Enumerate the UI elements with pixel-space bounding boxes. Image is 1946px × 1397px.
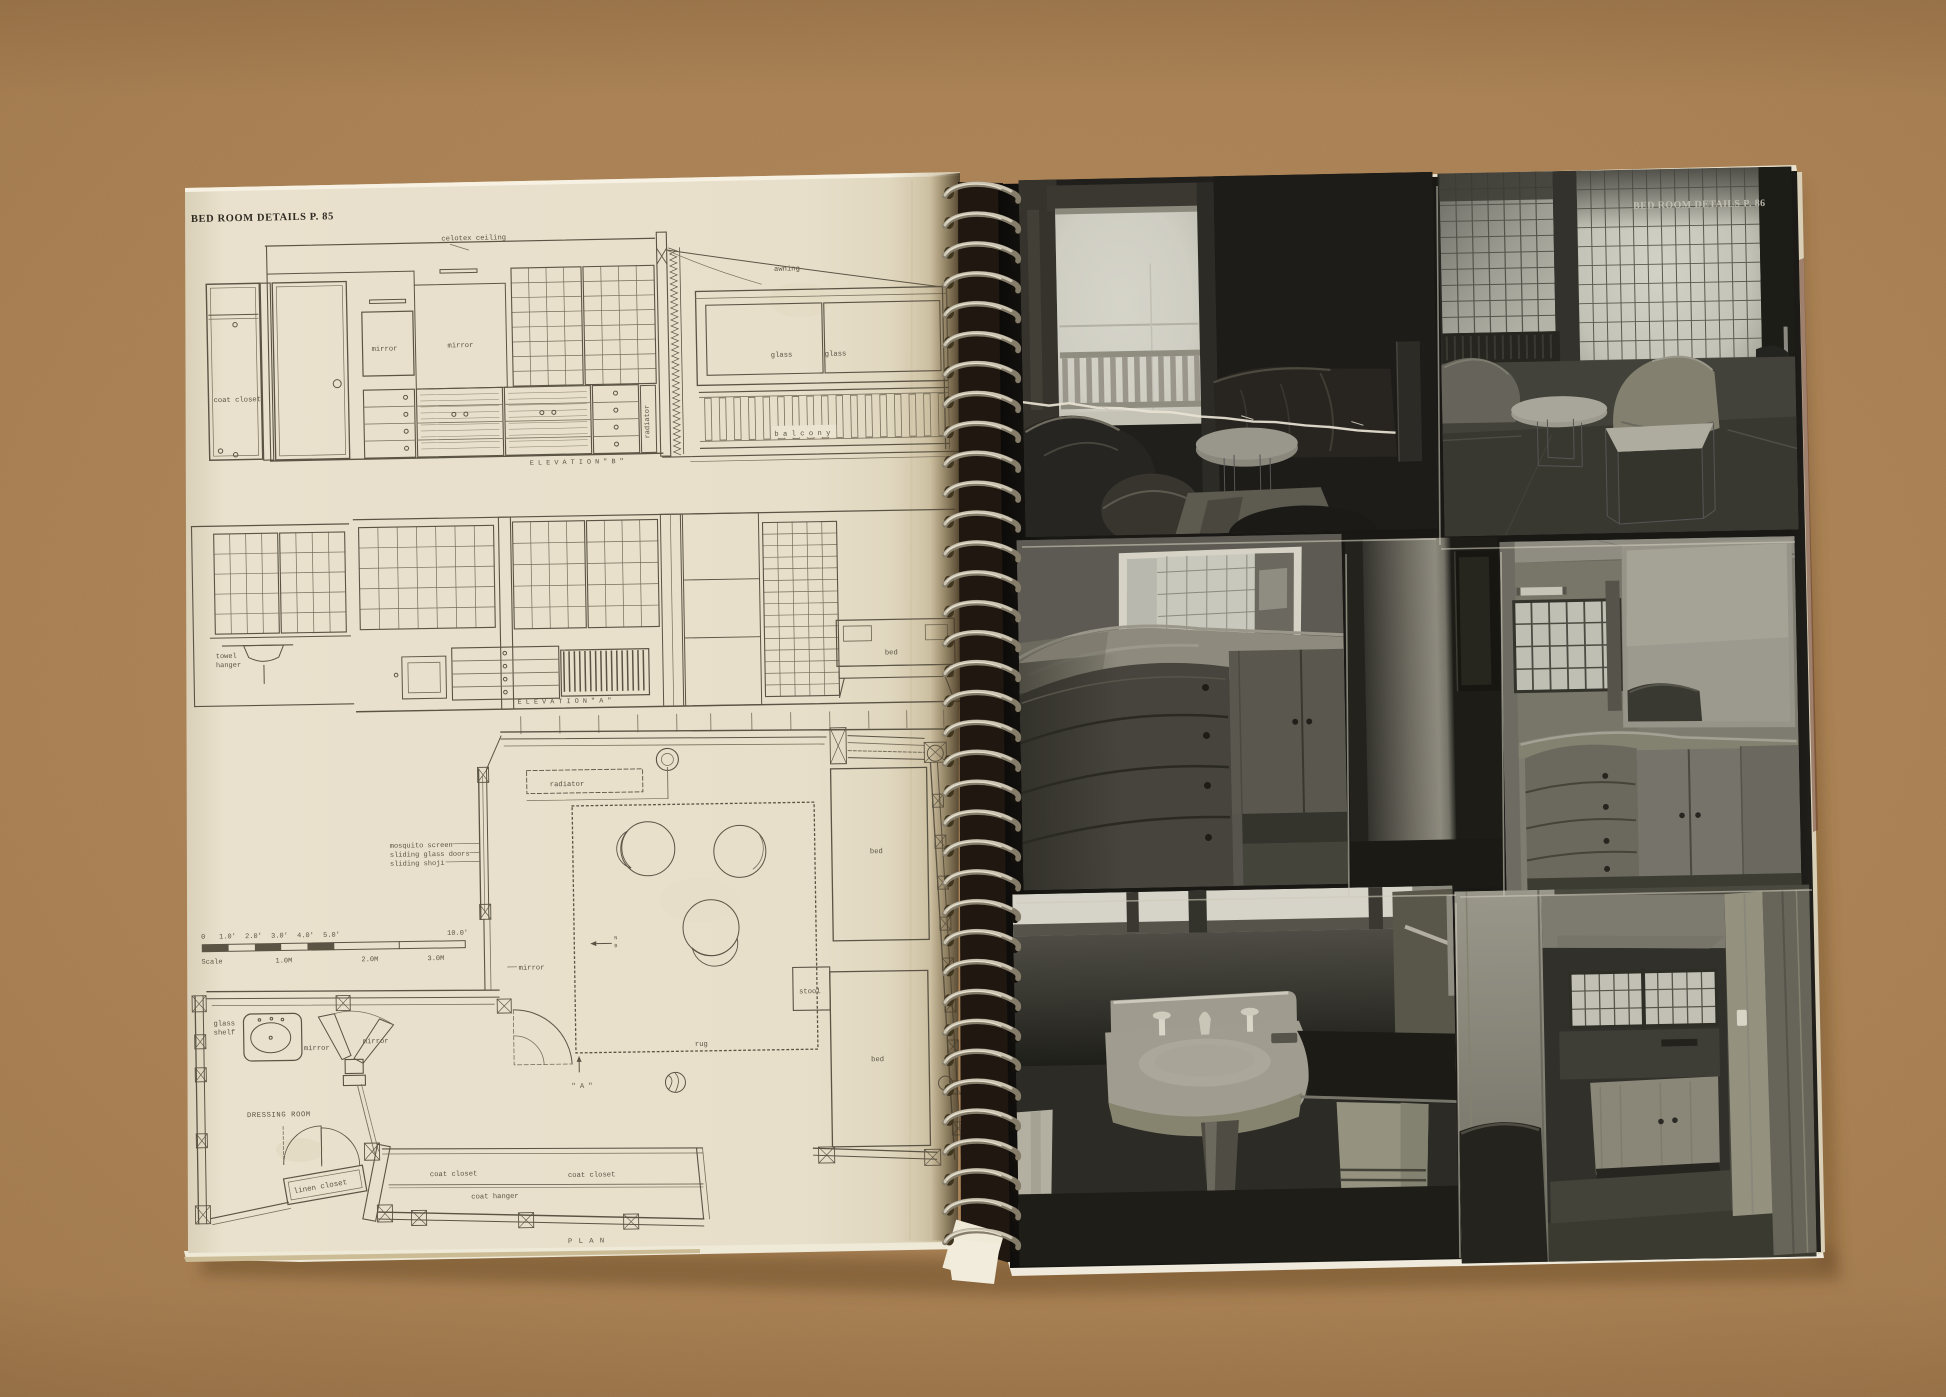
svg-text:P L A N: P L A N: [568, 1237, 605, 1246]
svg-text:bed: bed: [870, 848, 883, 856]
svg-text:mirror: mirror: [304, 1045, 330, 1053]
svg-text:coat hanger: coat hanger: [471, 1193, 519, 1202]
svg-text:Scale: Scale: [201, 958, 222, 966]
svg-text:glass: glass: [771, 352, 793, 360]
svg-text:mirror: mirror: [447, 342, 473, 351]
svg-text:2.0': 2.0': [245, 933, 262, 941]
svg-text:E L E V A T I O N " A ": E L E V A T I O N " A ": [518, 697, 612, 707]
svg-text:B: B: [614, 943, 617, 949]
svg-text:DRESSING ROOM: DRESSING ROOM: [247, 1111, 311, 1120]
svg-text:mosquito screen: mosquito screen: [390, 842, 453, 851]
svg-text:b a l c o n y: b a l c o n y: [774, 430, 831, 439]
svg-text:10.0': 10.0': [447, 930, 468, 938]
svg-text:1.0M: 1.0M: [275, 957, 292, 965]
svg-text:rug: rug: [695, 1041, 708, 1049]
svg-text:stool: stool: [799, 988, 821, 996]
svg-text:mirror: mirror: [519, 964, 545, 972]
svg-text:mirror: mirror: [371, 345, 397, 354]
svg-text:celotex ceiling: celotex ceiling: [441, 234, 506, 243]
svg-text:" A ": " A ": [571, 1083, 592, 1091]
svg-text:coat closet: coat closet: [568, 1171, 616, 1180]
svg-text:awning: awning: [774, 265, 800, 274]
svg-text:5.0': 5.0': [323, 932, 340, 940]
svg-text:1.0': 1.0': [219, 933, 236, 941]
svg-text:glass: glass: [213, 1020, 235, 1028]
svg-text:3.0M: 3.0M: [427, 955, 444, 963]
svg-text:radiator: radiator: [644, 405, 653, 439]
svg-text:sliding glass doors: sliding glass doors: [390, 851, 470, 860]
svg-text:coat closet: coat closet: [430, 1170, 478, 1179]
svg-text:bed: bed: [885, 649, 898, 657]
svg-text:0: 0: [201, 934, 205, 942]
svg-text:coat closet: coat closet: [213, 396, 261, 405]
svg-text:bed: bed: [871, 1056, 884, 1064]
svg-text:sliding shoji: sliding shoji: [390, 860, 445, 869]
svg-text:4.0': 4.0': [297, 932, 314, 940]
svg-text:N: N: [614, 935, 617, 941]
svg-text:shelf: shelf: [214, 1029, 236, 1037]
svg-text:towel: towel: [216, 653, 237, 661]
svg-text:mirror: mirror: [363, 1038, 389, 1046]
svg-text:radiator: radiator: [550, 781, 585, 790]
svg-text:2.0M: 2.0M: [361, 956, 378, 964]
svg-text:3.0': 3.0': [271, 932, 288, 940]
svg-text:hanger: hanger: [216, 662, 241, 670]
svg-text:glass: glass: [825, 350, 847, 358]
